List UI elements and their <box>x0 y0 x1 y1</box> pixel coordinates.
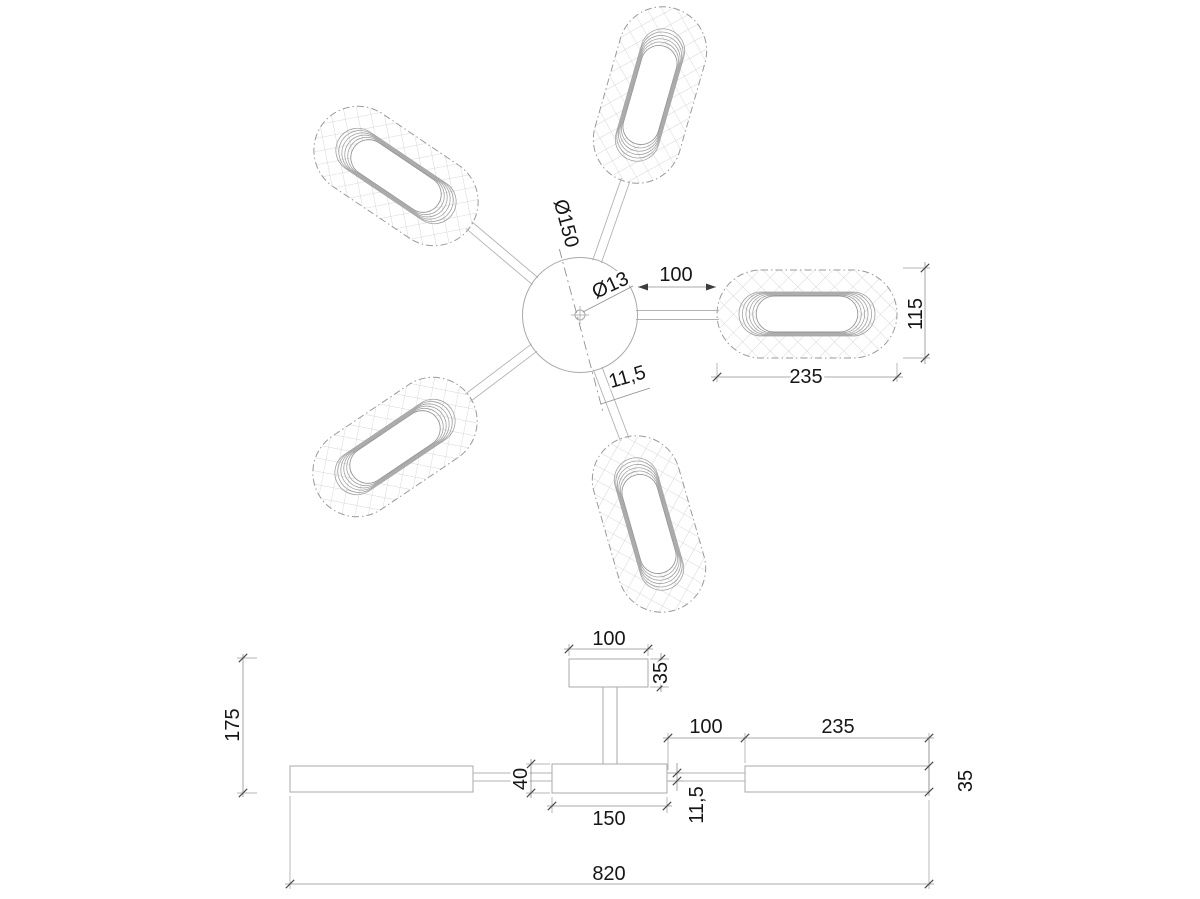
dim-canopy-height: 35 <box>650 653 672 692</box>
right-head-side <box>745 766 929 792</box>
dim-head-length-top: 235 <box>711 363 903 388</box>
lamp-technical-drawing: 100 235 115 11,5 Ø150 Ø13 <box>0 0 1200 899</box>
dim-head-thickness: 35 <box>925 738 977 796</box>
lamp-head-upper-left <box>297 89 495 263</box>
dim-tube-height-side-label: 11,5 <box>686 786 708 823</box>
dim-canopy-width-label: 100 <box>592 628 625 650</box>
dim-canopy-height-label: 35 <box>650 662 672 684</box>
dim-tube-height-side: 11,5 <box>668 763 708 824</box>
dim-drop-height: 175 <box>222 654 257 797</box>
dim-disc-thickness-label: 40 <box>510 768 532 790</box>
dim-top-arm-gap: 100 <box>638 264 716 291</box>
lamp-head-right <box>717 270 897 358</box>
dim-side-head-length-label: 235 <box>821 716 854 738</box>
dim-drop-height-label: 175 <box>222 708 244 741</box>
central-disc <box>552 764 667 793</box>
dim-side-arm-gap-label: 100 <box>689 716 722 738</box>
dim-disc-diameter: 150 <box>547 797 672 830</box>
lamp-head-top <box>583 0 717 194</box>
dim-tube-width-top-label: 11,5 <box>606 361 648 392</box>
left-head-side <box>290 766 473 792</box>
dim-disc-diameter-label: 150 <box>592 808 625 830</box>
dim-head-length-top-label: 235 <box>789 366 822 388</box>
side-view: 100 35 175 40 <box>222 628 977 889</box>
dim-top-arm-gap-label: 100 <box>659 264 692 286</box>
dim-head-width-top-label: 115 <box>905 298 927 330</box>
dim-disc-thickness: 40 <box>510 759 550 798</box>
arm-tubes <box>465 178 719 441</box>
dim-canopy-width: 100 <box>564 628 653 656</box>
technical-drawing-page: 100 235 115 11,5 Ø150 Ø13 <box>0 0 1200 899</box>
ceiling-canopy <box>569 659 648 687</box>
lamp-head-lower-right <box>582 425 716 622</box>
dim-head-thickness-label: 35 <box>955 770 977 792</box>
dim-hub-diameter-label: Ø150 <box>549 197 583 250</box>
dim-head-width-top: 115 <box>903 262 930 364</box>
dim-overall-width-label: 820 <box>592 863 625 885</box>
lamp-head-lower-left <box>296 360 494 534</box>
top-view: 100 235 115 11,5 Ø150 Ø13 <box>296 0 930 623</box>
dim-side-gap-and-head: 100 235 <box>663 716 934 770</box>
hub-diameter-centerline <box>559 249 603 411</box>
